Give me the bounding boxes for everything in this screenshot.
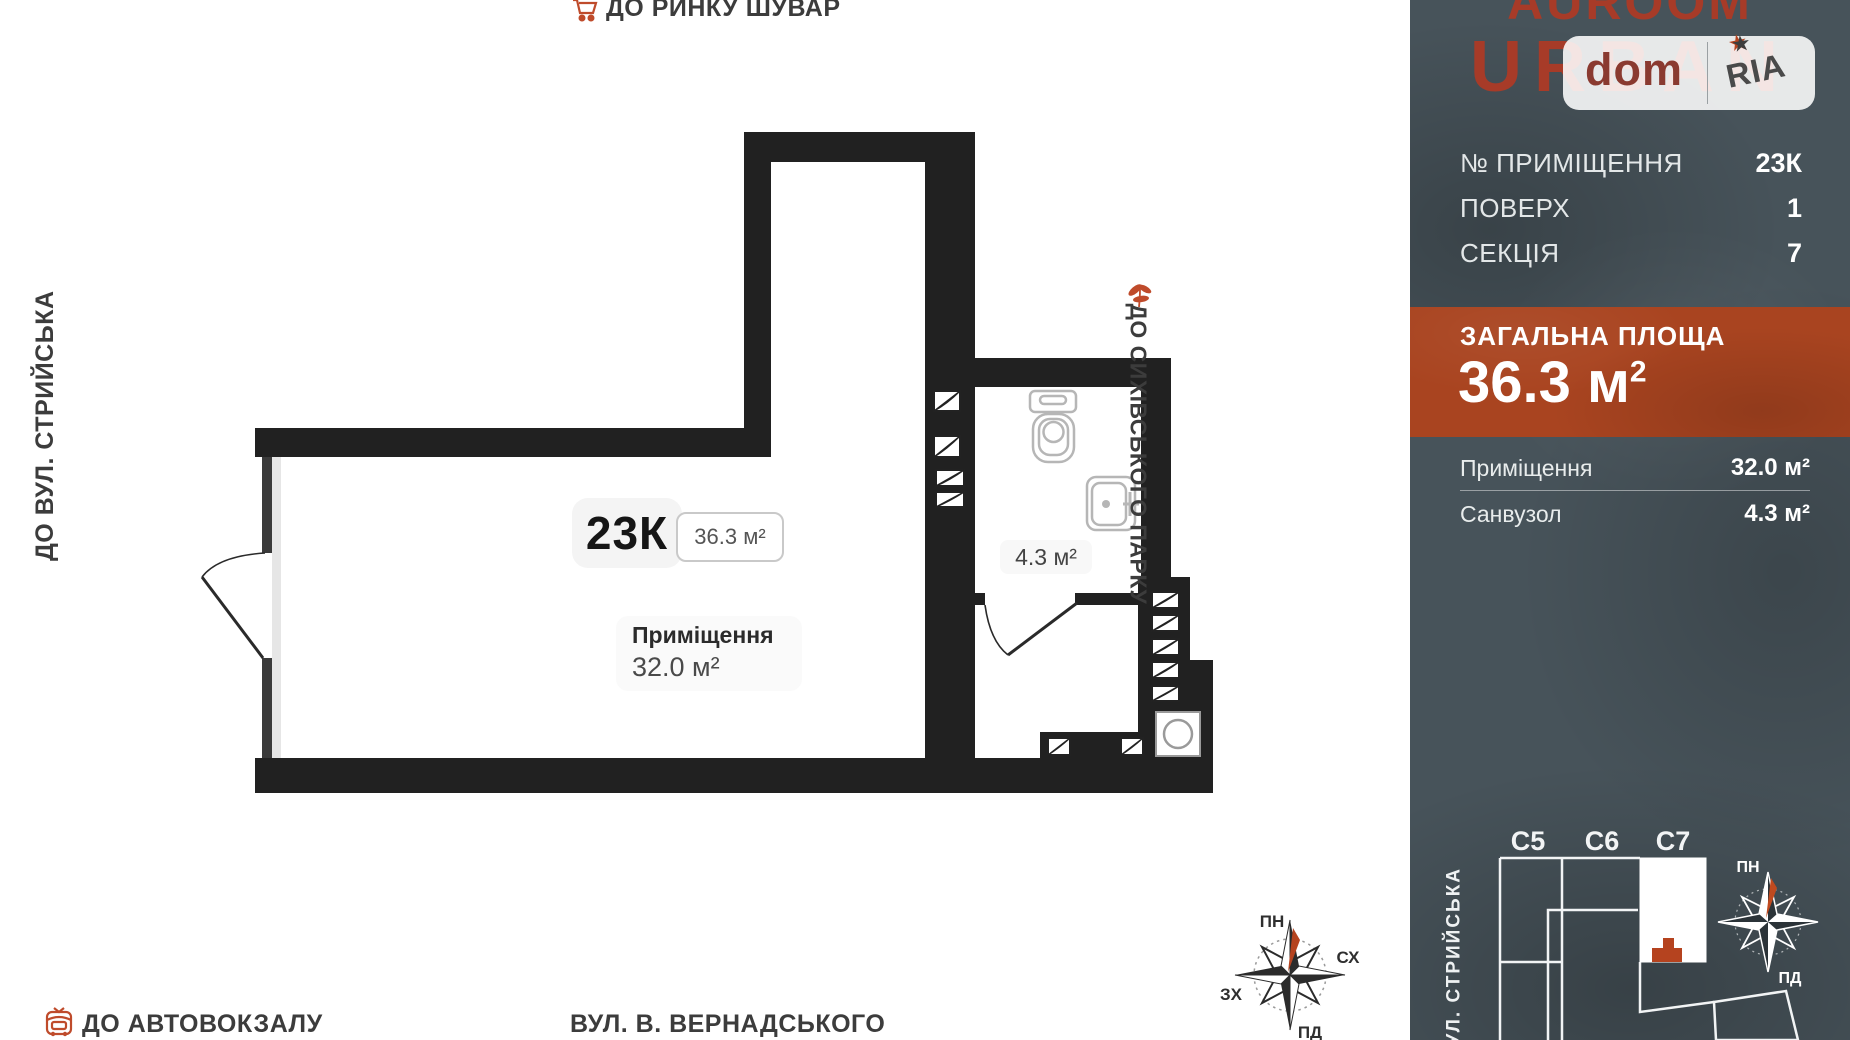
cart-icon	[572, 0, 600, 23]
walls	[255, 132, 1213, 793]
info-sidebar: AUROOM URBAN dom ★ ★ RIA № ПРИМІЩЕННЯ 23…	[1410, 0, 1850, 1040]
sidebar-street-label: ВУЛ. СТРИЙСЬКА	[1444, 876, 1466, 1040]
info-row-unit: № ПРИМІЩЕННЯ 23К	[1460, 148, 1802, 178]
section-minimap: С5 С6 С7	[1410, 820, 1850, 1040]
info-row-floor: ПОВЕРХ 1	[1460, 193, 1802, 223]
listing-floorplan-image: ПН СХ ЗХ ПД 23К 36.3 м² Приміщення 32.0 …	[0, 0, 1850, 1040]
minimap-compass-s: ПД	[1779, 970, 1803, 987]
compass-label-n: ПН	[1260, 912, 1285, 931]
total-area-label: ЗАГАЛЬНА ПЛОЩА	[1460, 321, 1725, 352]
area-row-bathroom: Санвузол 4.3 м²	[1460, 500, 1810, 528]
entrance-door	[202, 553, 265, 658]
minimap-section-c5: С5	[1511, 826, 1546, 856]
watermark-divider	[1707, 42, 1708, 104]
compass-label-e: СХ	[1337, 948, 1361, 967]
area-row-room: Приміщення 32.0 м²	[1460, 454, 1810, 482]
direction-label-left: ДО ВУЛ. СТРИЙСЬКА	[31, 316, 60, 561]
room-area: 32.0 м²	[632, 652, 802, 683]
minimap-compass: ПН ПД	[1718, 859, 1818, 987]
direction-label-bottom-left: ДО АВТОВОКЗАЛУ	[82, 1010, 323, 1039]
tram-icon	[42, 1006, 76, 1040]
direction-label-top: ДО РИНКУ ШУВАР	[606, 0, 841, 23]
toilet-icon	[1030, 391, 1076, 462]
room-label: Приміщення 32.0 м²	[616, 616, 802, 691]
minimap-compass-n: ПН	[1736, 859, 1759, 876]
compass-label-s: ПД	[1298, 1023, 1322, 1040]
minimap-section-c6: С6	[1585, 826, 1620, 856]
total-area-value: 36.3 м2	[1458, 349, 1647, 416]
unit-area-box: 36.3 м²	[676, 512, 784, 562]
dom-logo: dom	[1585, 44, 1683, 96]
info-row-section: СЕКЦІЯ 7	[1460, 238, 1802, 268]
street-label-bottom: ВУЛ. В. ВЕРНАДСЬКОГО	[570, 1010, 885, 1039]
direction-label-right: ДО СИХІВСЬКОГО ПАРКУ	[1125, 304, 1152, 576]
washer-icon	[1156, 712, 1200, 756]
area-divider	[1460, 490, 1810, 491]
total-area-banner: ЗАГАЛЬНА ПЛОЩА 36.3 м2	[1410, 307, 1850, 437]
bathroom-door	[985, 603, 1077, 655]
unit-number-badge: 23К	[572, 498, 682, 568]
room-name: Приміщення	[632, 622, 802, 649]
minimap-section-c7: С7	[1656, 826, 1691, 856]
bathroom-area-label: 4.3 м²	[1000, 540, 1092, 574]
compass-rose: ПН СХ ЗХ ПД	[1220, 912, 1360, 1040]
window-wall	[262, 457, 281, 758]
compass-label-w: ЗХ	[1220, 985, 1243, 1004]
